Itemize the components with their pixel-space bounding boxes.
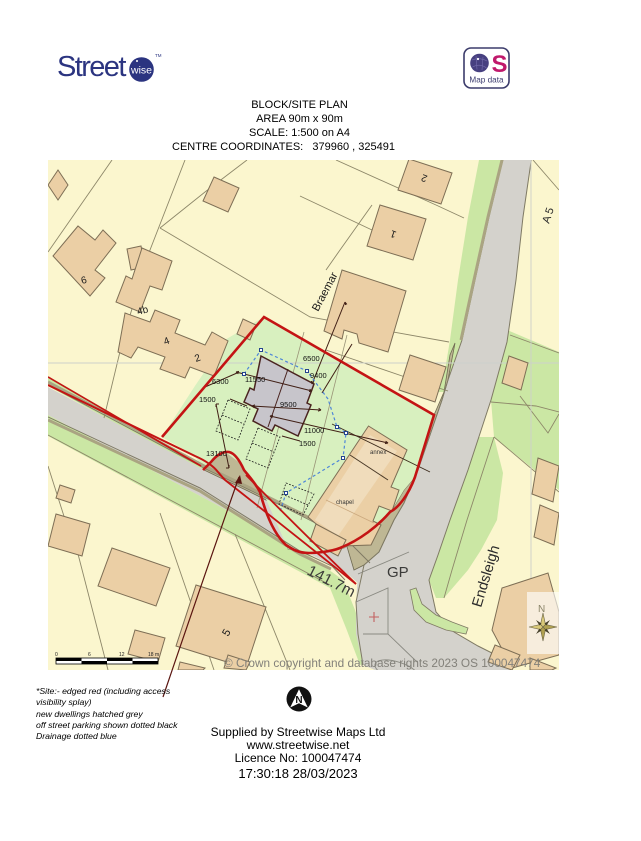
svg-text:N: N <box>295 695 302 706</box>
